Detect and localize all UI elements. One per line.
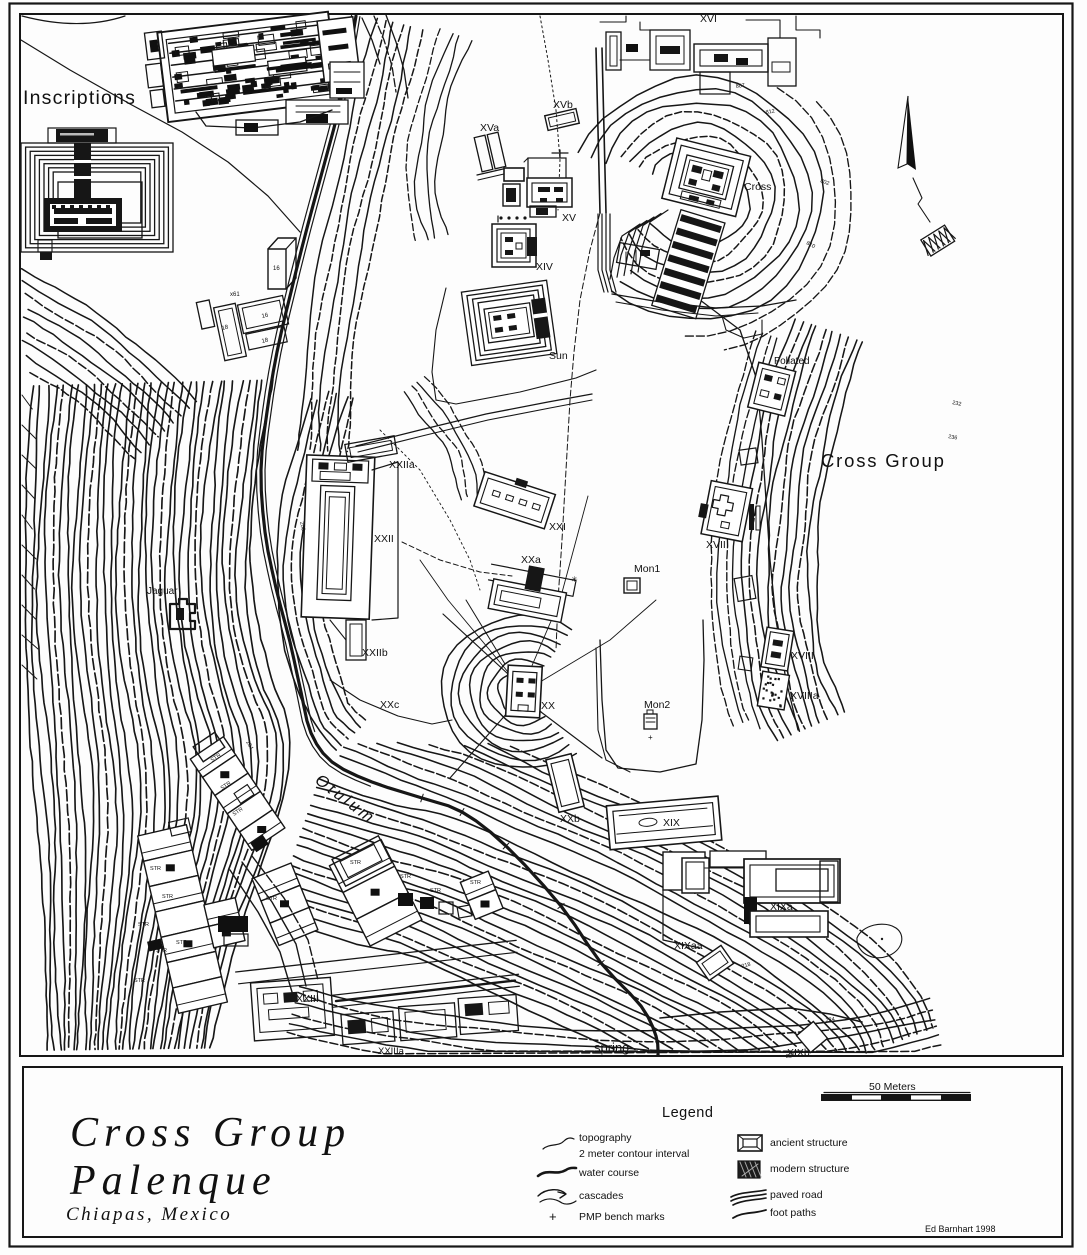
svg-text:PMP bench marks: PMP bench marks — [579, 1211, 665, 1223]
svg-text:Palenque: Palenque — [69, 1158, 277, 1204]
svg-text:XXII: XXII — [374, 533, 394, 545]
svg-text:Jaguar: Jaguar — [147, 586, 178, 597]
svg-text:XVb: XVb — [553, 99, 573, 111]
svg-text:Foliated: Foliated — [774, 356, 810, 367]
svg-text:2 meter contour interval: 2 meter contour interval — [579, 1148, 689, 1160]
svg-text:XXIII: XXIII — [296, 993, 319, 1005]
svg-text:XIV: XIV — [536, 261, 553, 273]
svg-text:STR: STR — [470, 880, 481, 886]
svg-text:Cross Group: Cross Group — [70, 1110, 351, 1156]
svg-text:XVIIIa: XVIIIa — [790, 690, 819, 702]
svg-text:spring: spring — [594, 1040, 629, 1055]
svg-text:+: + — [648, 733, 653, 742]
svg-text:water course: water course — [578, 1167, 639, 1179]
svg-text:XXIIIa: XXIIIa — [378, 1046, 405, 1057]
svg-text:228: 228 — [785, 1053, 795, 1060]
svg-text:XVIII: XVIII — [791, 650, 814, 662]
svg-text:Mon2: Mon2 — [644, 699, 670, 711]
svg-text:topography: topography — [579, 1132, 632, 1144]
svg-text:modern structure: modern structure — [770, 1163, 850, 1175]
svg-text:Cross Group: Cross Group — [821, 450, 946, 471]
svg-text:XXa: XXa — [521, 554, 541, 566]
svg-text:STR: STR — [138, 922, 149, 928]
svg-text:STR: STR — [430, 888, 441, 894]
svg-text:XIXa: XIXa — [770, 901, 793, 913]
svg-text:Legend: Legend — [662, 1105, 713, 1121]
svg-text:XVI: XVI — [700, 13, 717, 25]
svg-text:foot paths: foot paths — [770, 1207, 816, 1219]
svg-text:XV: XV — [562, 212, 576, 224]
svg-text:XXIIb: XXIIb — [362, 647, 388, 659]
svg-text:STR: STR — [150, 866, 161, 872]
svg-text:STR: STR — [156, 948, 167, 954]
svg-text:x61: x61 — [230, 292, 240, 298]
svg-text:STR: STR — [350, 860, 361, 866]
svg-text:50 Meters: 50 Meters — [869, 1081, 916, 1093]
svg-text:Inscriptions: Inscriptions — [23, 87, 136, 109]
svg-text:XIXaa: XIXaa — [674, 940, 703, 952]
svg-text:STR: STR — [400, 874, 411, 880]
svg-text:Cross: Cross — [744, 181, 771, 193]
svg-text:STR: STR — [162, 894, 173, 900]
svg-text:cascades: cascades — [579, 1190, 623, 1202]
svg-text:XVa: XVa — [480, 122, 499, 134]
svg-text:Ed Barnhart 1998: Ed Barnhart 1998 — [925, 1224, 996, 1234]
svg-text:XIX: XIX — [663, 817, 680, 829]
svg-text:XVII: XVII — [706, 539, 726, 551]
svg-text:Sun: Sun — [549, 350, 568, 362]
svg-text:Chiapas, Mexico: Chiapas, Mexico — [66, 1204, 232, 1225]
svg-text:16: 16 — [273, 266, 280, 272]
svg-text:XX: XX — [541, 700, 555, 712]
svg-text:Mon1: Mon1 — [634, 563, 660, 575]
svg-text:STR: STR — [176, 940, 187, 946]
svg-text:XXI: XXI — [549, 521, 566, 533]
svg-text:XXb: XXb — [560, 813, 580, 825]
svg-text:✳: ✳ — [571, 575, 578, 584]
svg-text:ancient structure: ancient structure — [770, 1137, 848, 1149]
svg-text:+: + — [549, 1209, 557, 1224]
svg-text:XXIIa: XXIIa — [389, 459, 415, 471]
svg-text:807: 807 — [735, 83, 745, 90]
svg-text:STR: STR — [134, 978, 145, 984]
svg-text:paved road: paved road — [770, 1189, 823, 1201]
